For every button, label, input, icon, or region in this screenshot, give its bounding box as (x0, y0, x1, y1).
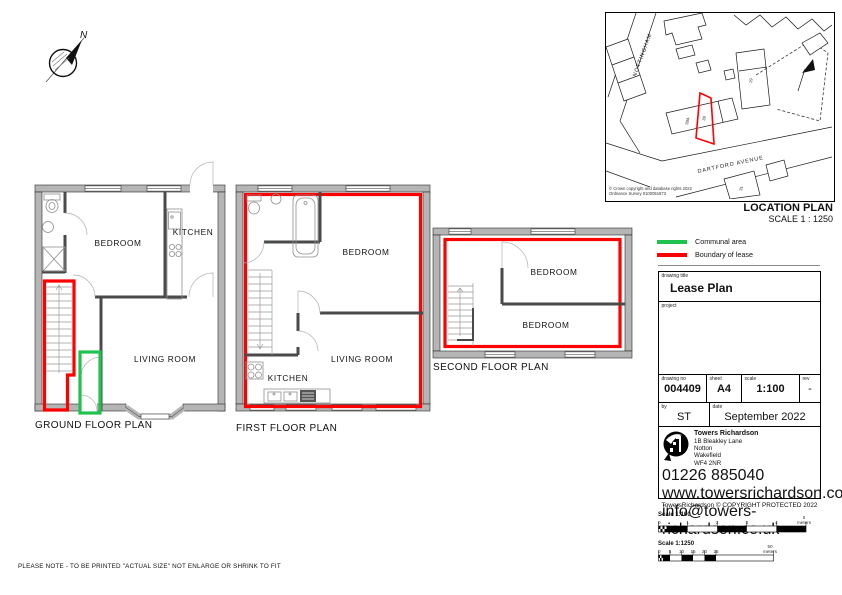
drawing-no-value: 004409 (659, 383, 706, 395)
by-value: ST (659, 411, 709, 423)
drawing-title-label: drawing title (659, 272, 820, 279)
rev-cell: rev - (799, 375, 820, 402)
second-stair-wall (457, 308, 473, 340)
project-label: project (659, 302, 820, 309)
drawing-info-row: drawing no 004409 sheet A4 scale 1:100 r… (659, 374, 820, 402)
company-row: Towers Richardson 1B Bleakley Lane Notto… (659, 426, 820, 498)
compass-north-label: N (80, 30, 88, 41)
copyright-notice: TowersRichardson © COPYRIGHT PROTECTED 2… (658, 502, 821, 509)
second-floor-plan: BEDROOM BEDROOM (433, 228, 632, 362)
legend-item-boundary: Boundary of lease (657, 248, 820, 261)
company-address-line: Notton (694, 445, 758, 452)
by-label: by (659, 403, 709, 410)
company-name: Towers Richardson (694, 430, 758, 438)
map-buildings (606, 13, 832, 199)
date-label: date (710, 403, 820, 410)
first-staircase (248, 270, 272, 355)
second-bedroom-front-label: BEDROOM (530, 267, 577, 277)
company-phone: 01226 885040 (662, 467, 842, 485)
date-value: September 2022 (710, 411, 820, 423)
company-address-line: WF4 2NR (694, 460, 758, 467)
second-staircase (448, 283, 473, 346)
first-bedroom-label: BEDROOM (342, 247, 389, 257)
company-website[interactable]: www.towersrichardson.com (662, 485, 842, 503)
scale-cell: scale 1:100 (741, 375, 799, 402)
company-address-line: Wakefield (694, 452, 758, 459)
second-door-arc (502, 242, 528, 268)
scale-label: scale (742, 375, 799, 382)
title-block: drawing title Lease Plan project drawing… (658, 271, 821, 499)
unit-label: meters (797, 520, 812, 525)
ground-interior-walls (42, 192, 187, 411)
ground-entry-door-arc (190, 162, 213, 185)
ground-floor-plan-title: GROUND FLOOR PLAN (35, 420, 152, 431)
first-kitchen-label: KITCHEN (268, 373, 309, 383)
company-address-line: 1B Bleakley Lane (694, 438, 758, 445)
ground-bedroom-label: BEDROOM (94, 238, 141, 248)
drawing-no-cell: drawing no 004409 (659, 375, 706, 402)
drawing-title-row: drawing title Lease Plan (659, 272, 820, 301)
second-bedroom-back-label: BEDROOM (522, 320, 569, 330)
first-living-room-label: LIVING ROOM (331, 354, 393, 364)
towers-richardson-logo (662, 430, 690, 462)
lease-plan-sheet: N (0, 0, 842, 595)
scale-bar-100-label: Scale 1:100 (658, 512, 691, 518)
sheet-label: sheet (707, 375, 741, 382)
company-info: Towers Richardson 1B Bleakley Lane Notto… (659, 427, 842, 498)
ground-living-room-label: LIVING ROOM (134, 354, 196, 364)
drawing-no-label: drawing no (659, 375, 706, 382)
ground-staircase (46, 285, 72, 373)
first-bathroom-fixtures (247, 194, 318, 257)
first-floor-plan-title: FIRST FLOOR PLAN (236, 423, 337, 434)
rev-label: rev (800, 375, 820, 382)
first-door-arcs (243, 242, 320, 351)
legend-divider (658, 265, 820, 266)
map-copyright-line2: Ordnance Survey 0100051873 (609, 191, 667, 196)
project-row: project (659, 301, 820, 374)
location-plan-title: LOCATION PLAN (605, 202, 833, 214)
legend-communal-label: Communal area (695, 237, 746, 246)
map-street-nottingham-label: NOTTINGHAM (632, 32, 653, 77)
second-outer-walls (433, 228, 632, 358)
location-plan-scale: SCALE 1 : 1250 (605, 214, 833, 224)
tick-marks (659, 551, 774, 556)
legend-boundary-label: Boundary of lease (695, 250, 753, 259)
compass-icon: N (38, 26, 94, 88)
scale-bar-1250: Scale 1:1250 0 5 10 15 20 25 50 meters (658, 540, 828, 564)
ground-kitchen-label: KITCHEN (173, 227, 214, 237)
scale-value: 1:100 (742, 383, 799, 395)
print-note: PLEASE NOTE - TO BE PRINTED "ACTUAL SIZE… (18, 563, 281, 570)
date-cell: date September 2022 (709, 403, 820, 426)
communal-area-swatch (657, 239, 687, 245)
scale-bar-1250-label: Scale 1:1250 (658, 541, 695, 547)
second-windows (449, 229, 595, 357)
location-plan-map: 29 39 39A 31 NOTTINGHAM DARTFORD AVENUE … (605, 12, 835, 202)
by-date-row: by ST date September 2022 (659, 402, 820, 426)
map-arrow-icon (798, 59, 815, 91)
second-floor-plan-title: SECOND FLOOR PLAN (433, 362, 549, 373)
legend-item-communal: Communal area (657, 235, 820, 248)
ground-kitchen-fixtures (167, 209, 182, 299)
rev-value: - (800, 383, 820, 395)
first-floor-plan: BEDROOM LIVING ROOM KITCHEN (236, 185, 430, 420)
drawing-title-value: Lease Plan (670, 281, 820, 295)
sheet-cell: sheet A4 (706, 375, 741, 402)
sheet-value: A4 (707, 383, 741, 395)
unit-label: meters (763, 549, 778, 554)
by-cell: by ST (659, 403, 709, 426)
ground-floor-plan: BEDROOM KITCHEN LIVING ROOM (35, 185, 225, 418)
second-lease-boundary (445, 240, 620, 347)
ground-bathroom-fixtures (43, 194, 66, 271)
scale-bar-100: Scale 1:100 0 1 2 3 4 5 meters (658, 511, 828, 535)
tick-marks (659, 522, 807, 527)
boundary-of-lease-swatch (657, 252, 687, 258)
legend: Communal area Boundary of lease (657, 235, 820, 261)
